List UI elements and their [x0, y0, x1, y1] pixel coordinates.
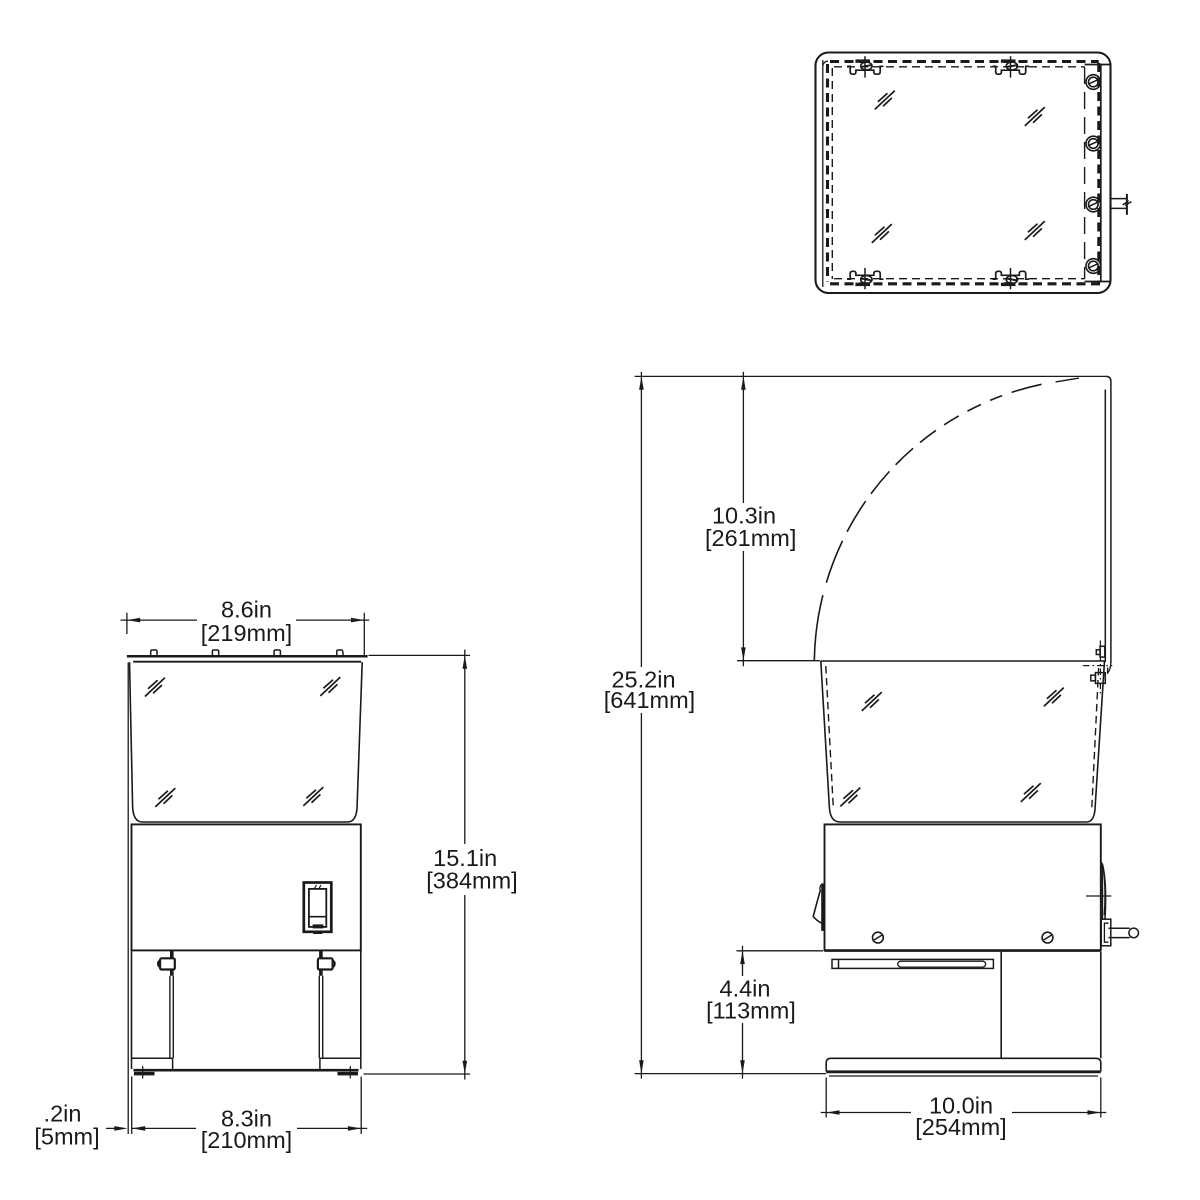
svg-text:8.6in: 8.6in [221, 597, 272, 623]
svg-text:[641mm]: [641mm] [604, 687, 695, 713]
svg-text:[261mm]: [261mm] [705, 525, 796, 551]
svg-text:[384mm]: [384mm] [426, 868, 517, 894]
svg-text:[5mm]: [5mm] [34, 1124, 99, 1150]
svg-text:[113mm]: [113mm] [706, 998, 796, 1024]
svg-text:[210mm]: [210mm] [201, 1127, 292, 1153]
svg-text:[219mm]: [219mm] [201, 620, 292, 646]
svg-text:[254mm]: [254mm] [915, 1114, 1006, 1140]
